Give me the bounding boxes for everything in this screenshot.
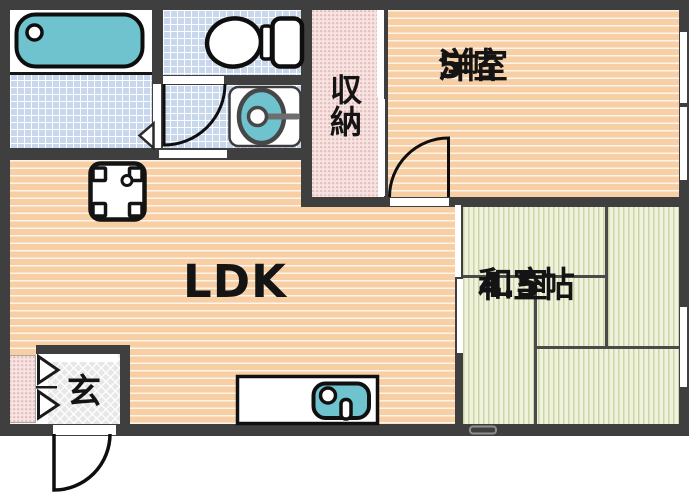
floorplan-canvas: LDK 洋室 5帖 和室 4.5帖 収納 玄 bbox=[0, 0, 689, 492]
shoe-cabinet bbox=[8, 355, 36, 423]
bathroom-floor bbox=[10, 10, 152, 148]
wall-west bbox=[0, 0, 10, 436]
ldk-room-label: LDK bbox=[160, 252, 310, 313]
entrance-door-opening bbox=[53, 425, 116, 435]
storage-closet-label: 収納 bbox=[324, 55, 364, 155]
western-room-floor bbox=[387, 10, 679, 197]
storage-sliding-panel bbox=[379, 99, 385, 196]
fusuma-sliding-panel bbox=[455, 205, 461, 277]
western-room-size: 5帖 bbox=[438, 44, 497, 91]
toilet-room-floor bbox=[163, 10, 301, 75]
genkan-step bbox=[46, 354, 118, 362]
wall-genkan-east bbox=[120, 345, 130, 424]
japanese-room-floor bbox=[463, 207, 679, 424]
wall-genkan-north bbox=[36, 345, 130, 354]
fusuma-sliding-panel bbox=[457, 279, 463, 353]
washroom-floor bbox=[163, 85, 301, 148]
toilet-door-opening bbox=[163, 76, 224, 84]
entrance-label: 玄 bbox=[59, 370, 109, 416]
storage-sliding-panel bbox=[377, 10, 383, 97]
window-western-room bbox=[680, 107, 687, 180]
japanese-room-size: 4.5帖 bbox=[478, 263, 575, 310]
tatami-line bbox=[535, 346, 679, 349]
bathroom-door-opening bbox=[153, 84, 161, 148]
shoe-cabinet-door-strip bbox=[36, 354, 48, 424]
wall-storage-west bbox=[301, 10, 312, 207]
western-room-door-opening bbox=[390, 198, 449, 206]
window-japanese-room bbox=[680, 307, 687, 387]
washroom-opening bbox=[159, 150, 227, 158]
wall-north bbox=[0, 0, 689, 10]
entrance-door-swing-arc bbox=[54, 434, 110, 490]
wall-western-room-south bbox=[301, 197, 689, 207]
window-western-room bbox=[680, 32, 687, 103]
ldk-floor-east bbox=[312, 207, 455, 424]
